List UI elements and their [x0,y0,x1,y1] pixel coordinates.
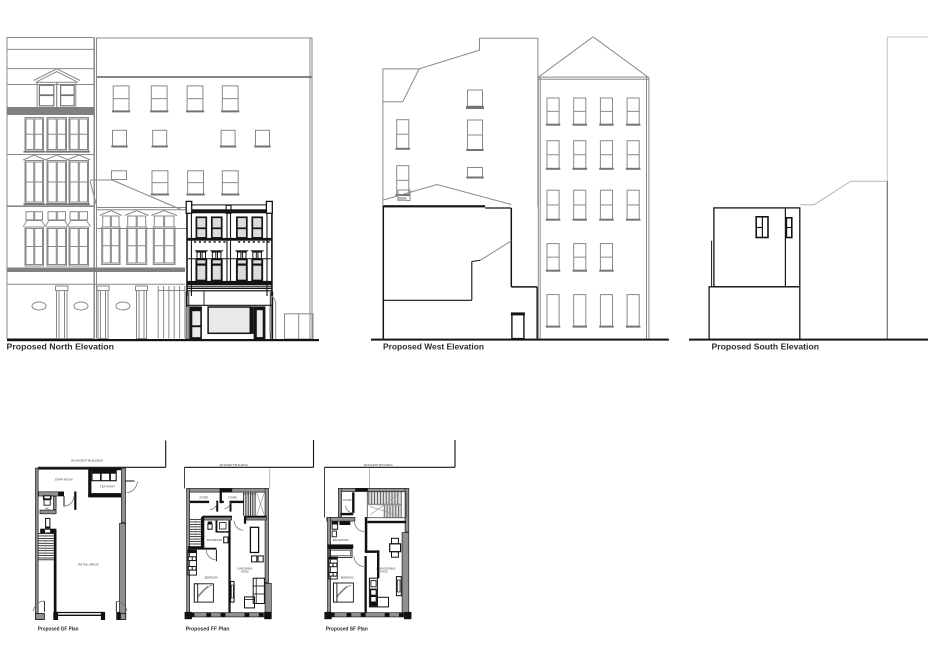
svg-text:RETAIL SPACE: RETAIL SPACE [78,563,98,567]
svg-text:TEA POINT: TEA POINT [100,485,115,489]
svg-text:BEDROOM: BEDROOM [341,576,354,580]
svg-text:Proposed GF Plan: Proposed GF Plan [38,627,79,633]
svg-text:BATHROOM: BATHROOM [333,538,349,542]
svg-text:STAFF ROOM: STAFF ROOM [55,478,73,482]
svg-text:ADJACENT BUILDING: ADJACENT BUILDING [71,458,104,462]
svg-text:Proposed North Elevation: Proposed North Elevation [7,342,115,352]
svg-text:ADJACENT BUILDING: ADJACENT BUILDING [364,463,394,467]
svg-text:Proposed West Elevation: Proposed West Elevation [383,342,484,352]
svg-text:ROOM: ROOM [241,570,249,574]
svg-text:STORE: STORE [228,495,237,499]
svg-text:STORE: STORE [343,498,352,502]
svg-text:Proposed South Elevation: Proposed South Elevation [712,342,820,352]
svg-text:STORE: STORE [199,495,208,499]
svg-text:BEDROOM: BEDROOM [205,576,218,580]
svg-text:ADJACENT BUILDING: ADJACENT BUILDING [219,463,248,467]
svg-text:BATHROOM: BATHROOM [207,538,222,542]
svg-text:Proposed SF Plan: Proposed SF Plan [326,627,369,633]
svg-text:WC: WC [45,506,50,510]
svg-text:ROOM: ROOM [380,570,388,574]
svg-text:Proposed FF Plan: Proposed FF Plan [186,627,230,633]
